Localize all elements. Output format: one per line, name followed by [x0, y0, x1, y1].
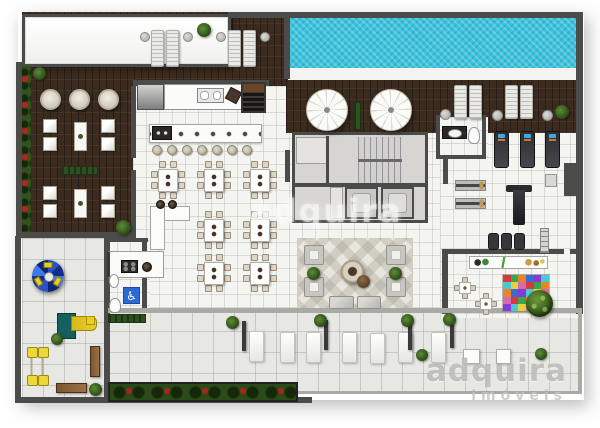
plant — [307, 267, 320, 280]
benchwood — [90, 346, 100, 377]
plant — [197, 23, 211, 37]
mat — [501, 233, 512, 250]
accessible: ♿ — [123, 287, 140, 304]
dining8 — [151, 161, 185, 199]
armchair — [386, 277, 406, 297]
plant — [555, 105, 569, 119]
plant — [401, 314, 414, 327]
lounger — [228, 30, 241, 67]
tablesq — [496, 349, 511, 364]
pot — [168, 200, 177, 209]
barstool — [242, 145, 252, 155]
tablesq — [463, 349, 480, 364]
plant — [389, 267, 402, 280]
sidetable — [542, 110, 553, 121]
lounger — [166, 30, 179, 67]
plant — [314, 314, 327, 327]
sidetable — [216, 32, 226, 42]
dining8 — [197, 161, 231, 199]
seat — [101, 137, 115, 151]
armchair — [386, 245, 406, 265]
seat — [43, 119, 57, 133]
weightbench — [455, 198, 486, 209]
screen — [242, 321, 246, 351]
lounger — [469, 85, 482, 119]
seat — [43, 204, 57, 218]
dining8 — [197, 211, 231, 249]
seesaw — [26, 347, 37, 386]
vanity — [442, 126, 467, 139]
toilet — [109, 298, 121, 313]
pot — [156, 200, 165, 209]
coffeemachine — [152, 126, 172, 140]
sidetable — [183, 32, 193, 42]
sidetable — [492, 110, 503, 121]
furniture-layer: ♿ — [0, 0, 600, 428]
dining8 — [197, 254, 231, 292]
plant — [226, 316, 239, 329]
seat — [43, 137, 57, 151]
decktable — [74, 122, 87, 151]
seesaw — [37, 347, 48, 386]
plant — [116, 220, 131, 235]
toybox — [86, 316, 95, 325]
sink2 — [197, 88, 224, 103]
multigym — [506, 185, 532, 222]
seat — [101, 204, 115, 218]
dining8 — [243, 161, 277, 199]
daybed — [306, 332, 321, 363]
benchwood — [56, 383, 87, 393]
lounger — [454, 85, 467, 119]
sidetable — [260, 32, 270, 42]
mat — [488, 233, 499, 250]
barstool — [167, 145, 177, 155]
seat — [43, 186, 57, 200]
barstool — [227, 145, 237, 155]
wallbars — [540, 228, 549, 253]
decktable — [74, 189, 87, 218]
dining8 — [243, 254, 277, 292]
pompon — [526, 290, 553, 317]
barstool — [152, 145, 162, 155]
gametable4 — [454, 277, 476, 299]
roundtable — [40, 89, 61, 110]
lounger — [505, 85, 518, 119]
grill — [241, 82, 266, 113]
hedge — [108, 314, 146, 323]
planter — [353, 102, 361, 130]
stove — [121, 260, 138, 273]
treadmill — [494, 131, 509, 168]
daybed — [342, 332, 357, 363]
carousel — [32, 260, 64, 292]
lounger — [243, 30, 256, 67]
daybed — [280, 332, 295, 363]
barstool — [197, 145, 207, 155]
lounger — [151, 30, 164, 67]
playset — [57, 309, 97, 345]
plant — [535, 348, 547, 360]
plant — [33, 67, 46, 80]
armchair — [304, 245, 324, 265]
floor-plan-canvas: ♿ adquira adquira imóveis — [0, 0, 600, 428]
sidetable — [440, 109, 451, 120]
barstool — [212, 145, 222, 155]
pot — [142, 262, 152, 272]
ottoman — [329, 296, 354, 309]
sinkoval — [109, 274, 119, 288]
daybed — [370, 333, 385, 364]
fridge — [137, 84, 164, 110]
treadmill — [545, 131, 560, 168]
barstool — [182, 145, 192, 155]
roundtable — [69, 89, 90, 110]
plant — [416, 349, 428, 361]
toilet — [468, 127, 480, 144]
planter — [61, 166, 98, 175]
storagebox — [545, 174, 557, 187]
armchair — [304, 277, 324, 297]
umbrella — [306, 89, 348, 131]
gametable4 — [475, 293, 497, 315]
ottoman — [357, 296, 381, 309]
daybed — [431, 332, 446, 363]
toyshelf — [469, 256, 548, 269]
weightbench — [455, 180, 486, 191]
plant — [443, 313, 456, 326]
plant — [89, 383, 102, 396]
roundtable — [98, 89, 119, 110]
seat — [101, 186, 115, 200]
umbrella — [370, 89, 412, 131]
lounger — [520, 85, 533, 119]
sidetable — [140, 32, 150, 42]
plant — [51, 333, 63, 345]
daybed — [249, 331, 264, 362]
pouf — [357, 275, 370, 288]
treadmill — [520, 131, 535, 168]
dining8 — [243, 211, 277, 249]
buffet — [150, 206, 188, 248]
mat — [514, 233, 525, 250]
seat — [101, 119, 115, 133]
